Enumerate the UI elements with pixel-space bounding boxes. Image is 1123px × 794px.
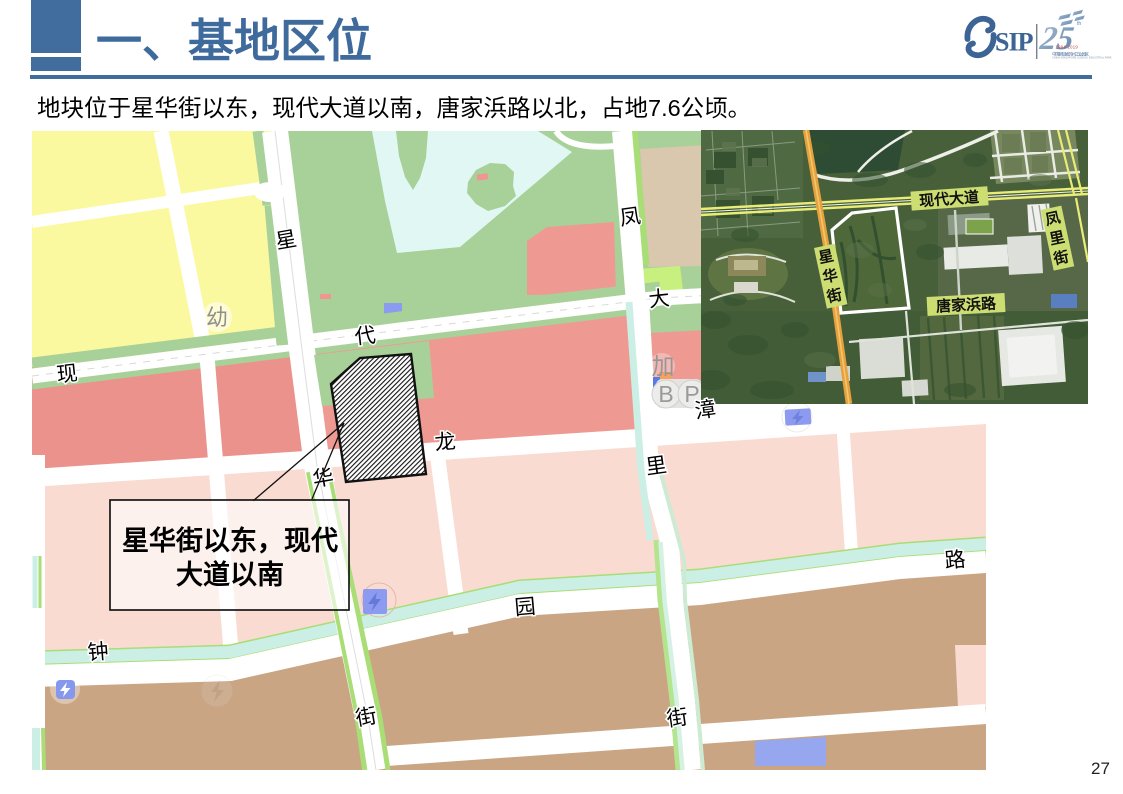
- svg-text:漳: 漳: [693, 398, 717, 424]
- svg-text:星华街以东，现代: 星华街以东，现代: [122, 525, 338, 556]
- svg-text:幼: 幼: [206, 305, 228, 330]
- svg-text:龙: 龙: [434, 430, 457, 455]
- svg-text:CHINA-SINGAPORE SUZHOU INDUSTR: CHINA-SINGAPORE SUZHOU INDUSTRIAL PARK: [1052, 56, 1112, 60]
- svg-text:B: B: [658, 381, 673, 407]
- svg-text:1994 2019: 1994 2019: [1056, 45, 1079, 50]
- svg-text:华: 华: [311, 465, 336, 491]
- svg-text:路: 路: [944, 548, 967, 573]
- svg-text:现: 现: [56, 362, 79, 387]
- svg-text:街: 街: [665, 706, 689, 732]
- svg-text:星: 星: [274, 227, 299, 253]
- svg-text:钟: 钟: [87, 640, 110, 665]
- svg-text:加: 加: [652, 353, 675, 379]
- svg-text:唐家浜路: 唐家浜路: [936, 294, 998, 315]
- svg-text:大: 大: [648, 287, 671, 312]
- svg-text:大道以南: 大道以南: [176, 559, 284, 590]
- svg-text:SIP: SIP: [995, 28, 1034, 57]
- svg-text:凤: 凤: [618, 205, 642, 231]
- svg-text:th: th: [1077, 21, 1081, 27]
- svg-text:代: 代: [354, 324, 377, 349]
- svg-text:街: 街: [354, 704, 379, 730]
- svg-text:园: 园: [514, 595, 537, 620]
- svg-text:里: 里: [644, 454, 668, 480]
